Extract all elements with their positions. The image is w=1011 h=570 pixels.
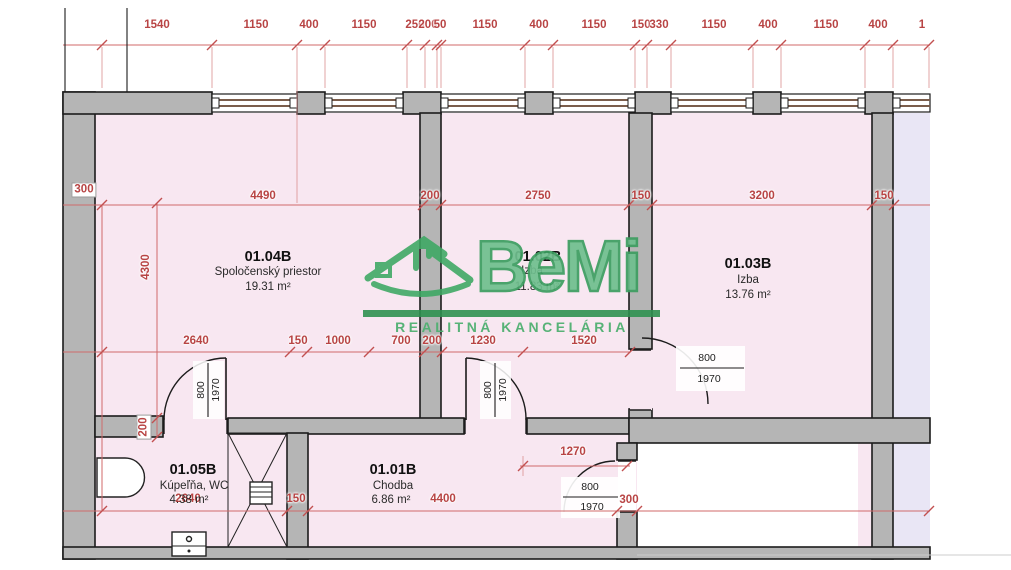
watermark-brand-name: BeMi [476,231,640,303]
bathtub [97,458,145,497]
window [325,94,403,112]
window [553,94,635,112]
window [781,94,865,112]
washbasin [172,532,206,556]
window [212,94,297,112]
window [441,94,525,112]
window [893,94,930,112]
watermark-brand-tagline: REALITNÁ KANCELÁRIA [363,319,661,335]
window [671,94,753,112]
floor-plan-canvas: 1540 1150 400 1150 250 200 50 1150 400 1… [0,0,1011,570]
watermark-underline [363,310,660,317]
